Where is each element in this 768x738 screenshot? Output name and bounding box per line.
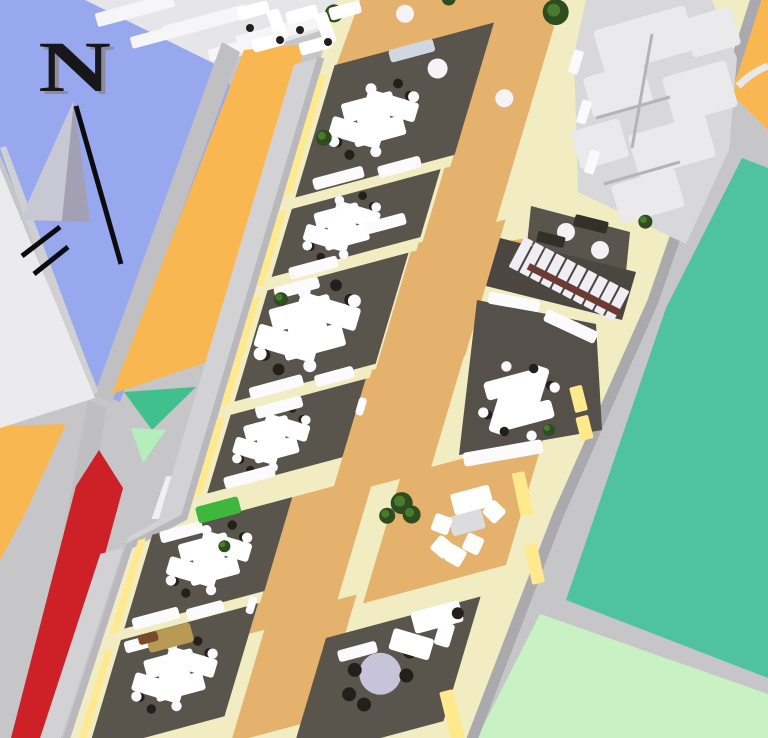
svg-text:N: N [38, 27, 111, 107]
